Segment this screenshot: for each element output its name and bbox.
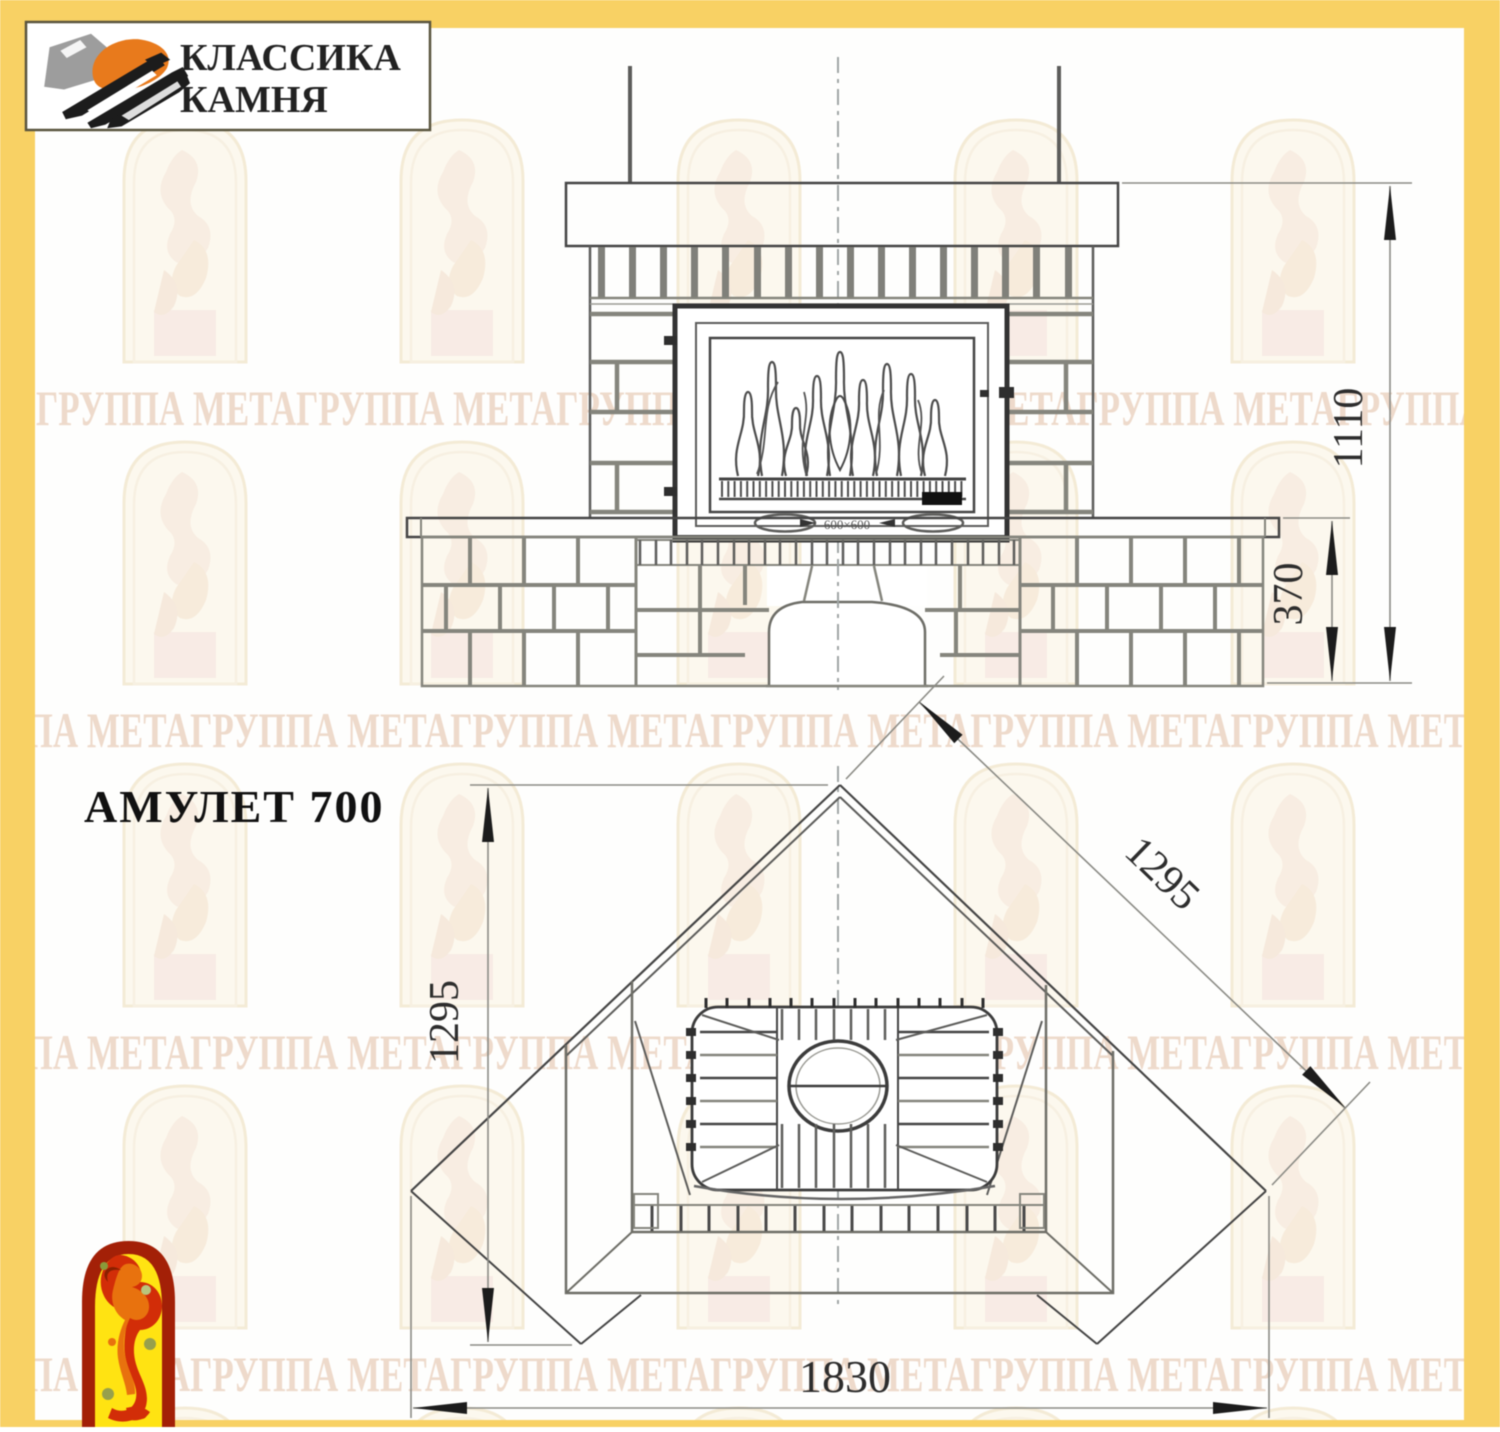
svg-text:КАМНЯ: КАМНЯ	[180, 79, 328, 121]
svg-text:370: 370	[1266, 563, 1312, 626]
svg-text:АМУЛЕТ 700: АМУЛЕТ 700	[84, 781, 384, 832]
svg-text:1295: 1295	[422, 980, 468, 1064]
svg-text:ГРУППА МЕТАГРУППА МЕТАГРУППА М: ГРУППА МЕТАГРУППА МЕТАГРУППА МЕТАГРУППА …	[0, 1348, 1491, 1402]
svg-text:КЛАССИКА: КЛАССИКА	[180, 37, 401, 79]
svg-text:ГРУППА МЕТАГРУППА МЕТАГРУППА М: ГРУППА МЕТАГРУППА МЕТАГРУППА МЕТАГРУППА …	[0, 704, 1491, 758]
svg-text:1830: 1830	[799, 1351, 891, 1402]
svg-text:1110: 1110	[1326, 388, 1372, 469]
